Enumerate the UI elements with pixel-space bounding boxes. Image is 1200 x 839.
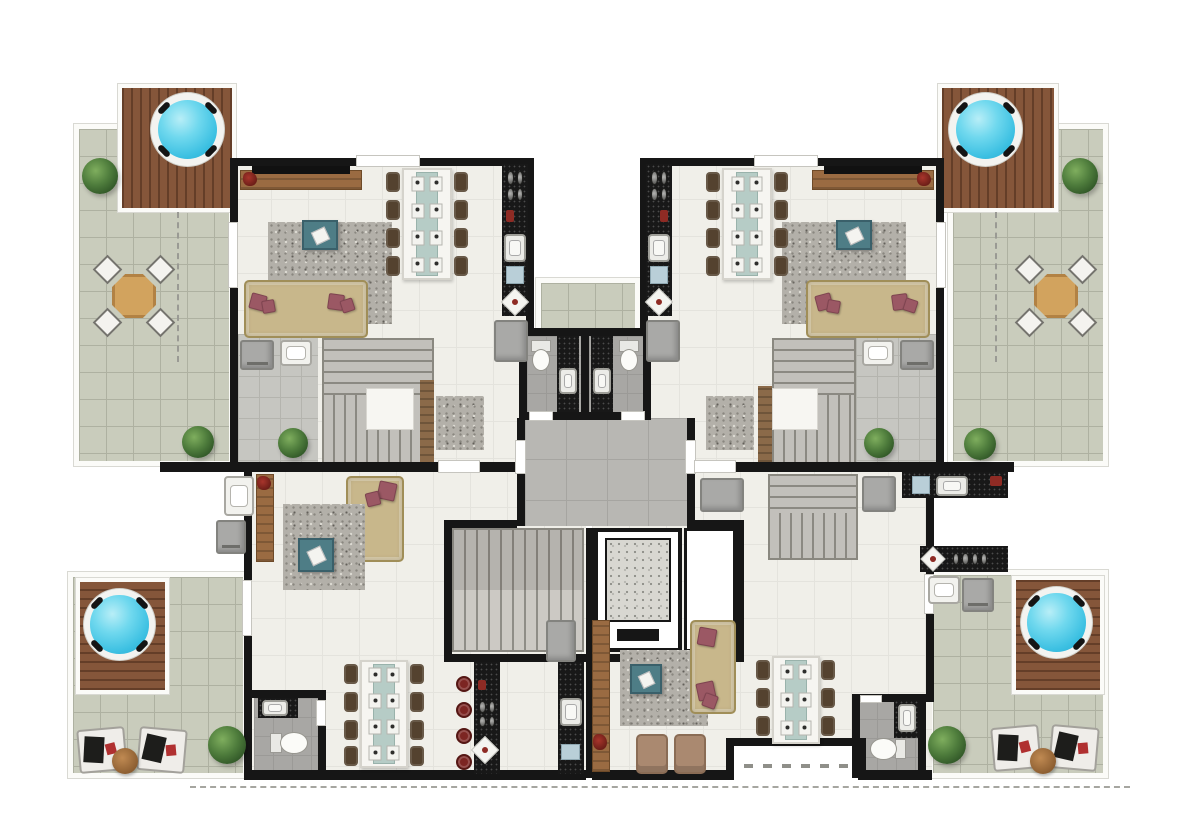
bath-sink-bottom-right (898, 704, 916, 732)
wall (248, 690, 326, 698)
dining-chair (386, 172, 400, 192)
fridge-top-left (494, 320, 528, 362)
flower-decor (593, 734, 607, 750)
wall (936, 288, 944, 464)
wall (230, 288, 238, 464)
wall (726, 738, 734, 780)
cabinet-bottom-right (700, 478, 744, 512)
dining-chair (454, 256, 468, 276)
dining-table-bottom-left (360, 660, 408, 768)
kitchen-sink-bottom-left (560, 698, 582, 726)
sink-center-left (559, 368, 577, 394)
coffee-table-top-left (302, 220, 338, 250)
dining-chair (410, 664, 424, 684)
door-apartment-bottom-right (694, 460, 736, 473)
wall (695, 462, 1014, 472)
bar-stool (456, 728, 472, 744)
side-table-bottom-left (112, 748, 138, 774)
rug-entry-top-right (706, 396, 754, 450)
dashed-line-right (995, 212, 997, 362)
stove-bottom-right (950, 550, 990, 568)
tv-top-right (824, 166, 922, 174)
dining-chair (410, 692, 424, 712)
dining-chair (410, 720, 424, 740)
dining-chair (821, 688, 835, 708)
dining-chair (386, 200, 400, 220)
dining-chair (386, 256, 400, 276)
fridge-bottom-right (862, 476, 896, 512)
flower-decor (243, 172, 257, 186)
dining-chair (706, 256, 720, 276)
stair-rail-top-right (758, 386, 772, 462)
hall-floor (525, 418, 687, 526)
dining-chair (774, 172, 788, 192)
dining-chair (706, 172, 720, 192)
dining-chair (706, 228, 720, 248)
stairs-apt-bottom-right (768, 474, 858, 560)
cutting-board (650, 266, 668, 284)
stairs-landing-top-left (366, 388, 414, 430)
sink-center-right (593, 368, 611, 394)
hot-tub-bottom-left (84, 589, 155, 660)
flower-decor (917, 172, 931, 186)
wall (444, 520, 452, 662)
wall (687, 520, 744, 528)
dining-chair (454, 228, 468, 248)
armchair (636, 734, 668, 774)
door-bathroom-bottom-right (860, 695, 882, 703)
dining-chair (386, 228, 400, 248)
plant (182, 426, 214, 458)
sofa-pillow (261, 299, 276, 314)
armchair (674, 734, 706, 774)
dining-chair (344, 692, 358, 712)
stove-bottom-left (476, 698, 498, 730)
washer-top-left (240, 340, 274, 370)
hot-tub-top-left (151, 93, 224, 166)
hot-tub-top-right (949, 93, 1022, 166)
wall (936, 158, 944, 222)
outdoor-table-top-left (96, 258, 172, 334)
side-table-bottom-right (1030, 748, 1056, 774)
lounge-chair (1048, 724, 1100, 772)
balcony-ticks (744, 764, 848, 768)
dining-chair (756, 688, 770, 708)
sofa-pillow (697, 627, 718, 648)
stair-rail-top-left (420, 380, 434, 464)
cutting-board (561, 744, 580, 760)
wall (230, 158, 238, 222)
dining-chair (774, 256, 788, 276)
dining-chair (410, 746, 424, 766)
toilet-bottom-left (270, 730, 310, 756)
washer-top-right (900, 340, 934, 370)
terrace-center-top (536, 278, 640, 334)
wall (736, 520, 744, 662)
door-terrace-bottom-left (242, 580, 252, 636)
dining-table-bottom-right (772, 656, 820, 744)
coffee-table-bottom-left (298, 538, 334, 572)
plant (278, 428, 308, 458)
stove-top-left (504, 168, 526, 204)
dining-chair (706, 200, 720, 220)
toilet-bottom-right (868, 736, 906, 762)
kitchen-decor (990, 476, 1002, 486)
fridge-top-right (646, 320, 680, 362)
hot-tub-bottom-right (1021, 587, 1092, 658)
kitchen-sink-top-left (504, 234, 526, 262)
door-terrace-top-left (228, 222, 238, 288)
door-bathroom-center-left (529, 411, 553, 421)
laundry-sink-bottom-left (224, 476, 254, 516)
dining-chair (756, 716, 770, 736)
balcony-notch (734, 746, 858, 778)
bath-sink-bottom-left (262, 700, 288, 716)
dining-table-top-left (402, 168, 452, 280)
outdoor-table-top-right (1018, 258, 1094, 334)
plant (1062, 158, 1098, 194)
door-apartment-bottom-left (438, 460, 480, 473)
kitchen-sink-top-right (648, 234, 670, 262)
stairs-landing-top-right (772, 388, 818, 430)
kitchen-sink-bottom-right (936, 476, 968, 496)
kitchen-decor (506, 210, 514, 222)
washer-bottom-right (962, 578, 994, 612)
fridge-bottom-left (546, 620, 576, 662)
plant (208, 726, 246, 764)
dining-chair (821, 716, 835, 736)
cutting-board (912, 476, 930, 494)
dining-table-top-right (722, 168, 772, 280)
wall (444, 520, 517, 528)
tv-top-left (252, 166, 350, 174)
dining-chair (454, 172, 468, 192)
rug-entry-top-left (436, 396, 484, 450)
laundry-sink-top-right (862, 340, 894, 366)
kitchen-decor (478, 680, 486, 690)
wall (244, 636, 252, 780)
door-terrace-top-right (936, 222, 946, 288)
plant (964, 428, 996, 460)
dining-chair (774, 228, 788, 248)
cutting-board (506, 266, 524, 284)
flower-decor (257, 476, 271, 490)
plant (928, 726, 966, 764)
boundary-dashed-line (190, 786, 1130, 788)
coffee-table-top-right (836, 220, 872, 250)
bar-stool (456, 702, 472, 718)
toilet-center-right (616, 340, 642, 372)
window-top-left (356, 155, 420, 167)
window-top-right (754, 155, 818, 167)
washer-bottom-left (216, 520, 246, 554)
wall (926, 614, 934, 702)
stove-top-right (648, 168, 670, 204)
laundry-sink-top-left (280, 340, 312, 366)
dining-chair (344, 664, 358, 684)
door-hall-left (515, 440, 526, 474)
door-bathroom-center-right (621, 411, 645, 421)
dining-chair (774, 200, 788, 220)
coffee-table-bottom-right (630, 664, 662, 694)
dining-chair (344, 746, 358, 766)
bar-stool (456, 676, 472, 692)
plant (82, 158, 118, 194)
door-bathroom-bottom-left (316, 700, 326, 726)
sofa-pillow (826, 299, 841, 314)
dining-chair (821, 660, 835, 680)
dining-chair (454, 200, 468, 220)
floor-plan (0, 0, 1200, 839)
bar-stool (456, 754, 472, 770)
kitchen-decor (660, 210, 668, 222)
toilet-center-left (528, 340, 554, 372)
lounge-chair (136, 726, 188, 774)
wall (248, 770, 586, 780)
dashed-line-left (177, 212, 179, 362)
wall (581, 328, 589, 420)
laundry-sink-bottom-right (928, 576, 960, 604)
dining-chair (756, 660, 770, 680)
wall (852, 694, 860, 778)
plant (864, 428, 894, 458)
dining-chair (344, 720, 358, 740)
